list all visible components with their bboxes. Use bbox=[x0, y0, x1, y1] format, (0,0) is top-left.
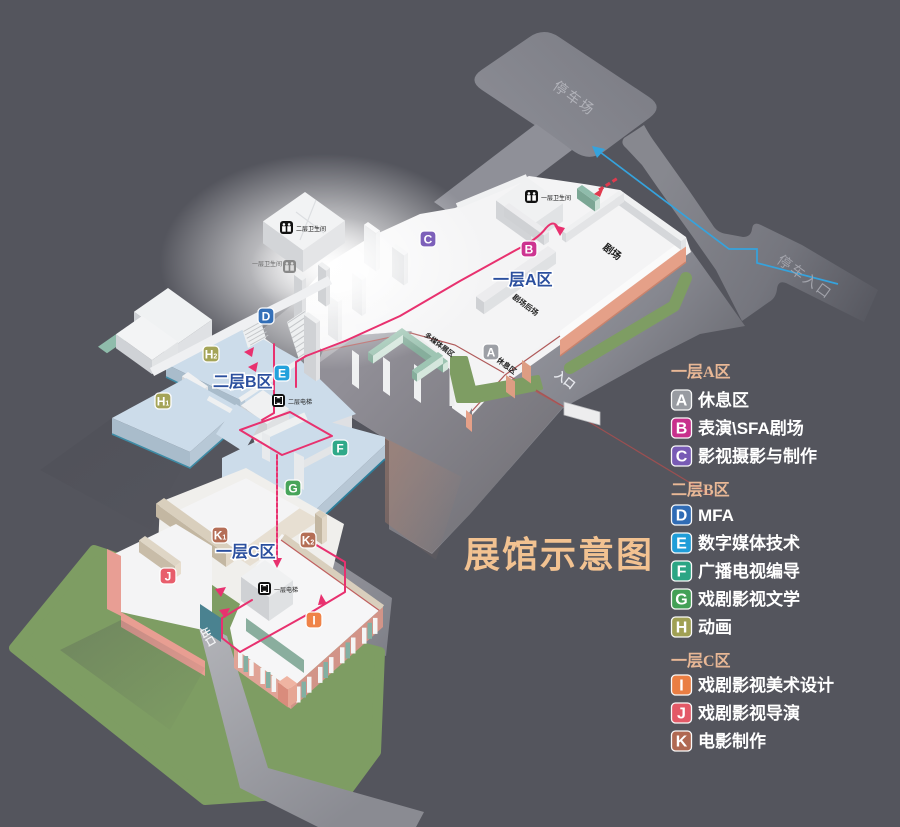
svg-text:电影制作: 电影制作 bbox=[698, 731, 766, 751]
svg-text:E: E bbox=[676, 536, 687, 553]
svg-text:D: D bbox=[262, 310, 271, 324]
svg-text:A: A bbox=[487, 346, 496, 360]
svg-text:J: J bbox=[165, 570, 172, 584]
svg-text:I: I bbox=[312, 614, 315, 628]
svg-text:一层A区: 一层A区 bbox=[493, 271, 553, 289]
svg-text:表演\SFA剧场: 表演\SFA剧场 bbox=[698, 418, 804, 438]
svg-text:一层A区: 一层A区 bbox=[671, 363, 731, 381]
svg-text:一层卫生间: 一层卫生间 bbox=[252, 260, 282, 268]
svg-text:一层C区: 一层C区 bbox=[671, 652, 731, 670]
svg-text:一层电梯: 一层电梯 bbox=[274, 586, 298, 594]
svg-text:G: G bbox=[288, 482, 297, 496]
svg-text:戏剧影视美术设计: 戏剧影视美术设计 bbox=[697, 675, 834, 695]
svg-text:二层B区: 二层B区 bbox=[213, 373, 273, 391]
svg-text:影视摄影与制作: 影视摄影与制作 bbox=[698, 446, 817, 466]
svg-text:I: I bbox=[679, 678, 683, 695]
svg-text:一层C区: 一层C区 bbox=[216, 543, 276, 561]
svg-text:休息区: 休息区 bbox=[697, 390, 749, 410]
svg-text:F: F bbox=[336, 442, 343, 456]
svg-text:D: D bbox=[676, 508, 688, 525]
svg-text:F: F bbox=[677, 564, 687, 581]
svg-text:二层B区: 二层B区 bbox=[671, 481, 730, 499]
svg-text:戏剧影视文学: 戏剧影视文学 bbox=[697, 589, 800, 609]
svg-text:展馆示意图: 展馆示意图 bbox=[464, 534, 654, 575]
svg-text:K: K bbox=[676, 734, 688, 751]
svg-text:戏剧影视导演: 戏剧影视导演 bbox=[697, 703, 800, 723]
svg-text:H: H bbox=[676, 620, 688, 637]
svg-text:动画: 动画 bbox=[698, 618, 732, 637]
svg-text:二层电梯: 二层电梯 bbox=[288, 398, 312, 406]
svg-text:C: C bbox=[424, 233, 433, 247]
svg-text:G: G bbox=[675, 592, 687, 609]
svg-text:B: B bbox=[676, 421, 688, 438]
svg-text:数字媒体技术: 数字媒体技术 bbox=[698, 533, 800, 553]
svg-text:J: J bbox=[677, 706, 686, 723]
svg-text:E: E bbox=[278, 367, 286, 381]
svg-text:一层卫生间: 一层卫生间 bbox=[541, 194, 571, 202]
svg-text:B: B bbox=[525, 243, 534, 257]
svg-text:A: A bbox=[676, 393, 688, 410]
svg-text:C: C bbox=[676, 449, 688, 466]
svg-text:MFA: MFA bbox=[698, 506, 734, 525]
svg-text:二层卫生间: 二层卫生间 bbox=[296, 225, 326, 233]
svg-text:广播电视编导: 广播电视编导 bbox=[698, 561, 800, 581]
